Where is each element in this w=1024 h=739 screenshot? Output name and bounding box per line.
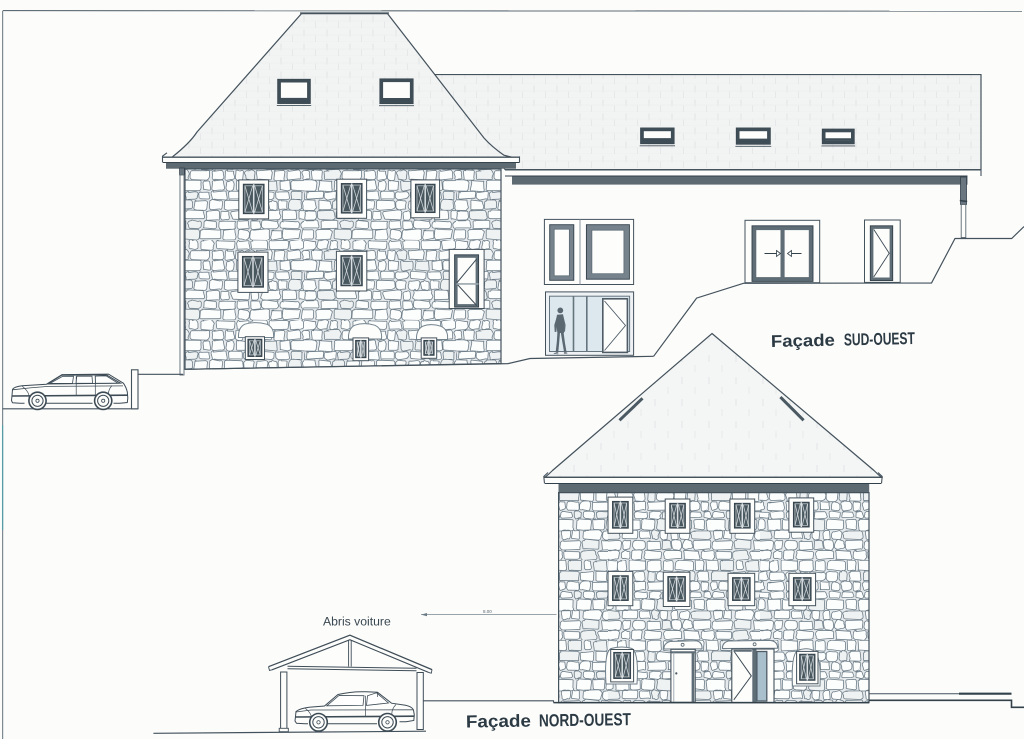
svg-text:SUD-OUEST: SUD-OUEST [844, 329, 916, 349]
svg-text:Façade: Façade [771, 331, 835, 351]
svg-text:Façade: Façade [466, 711, 532, 732]
svg-text:NORD-OUEST: NORD-OUEST [539, 709, 632, 730]
svg-text:Abris voiture: Abris voiture [323, 615, 391, 629]
svg-text:8.00: 8.00 [483, 609, 492, 614]
